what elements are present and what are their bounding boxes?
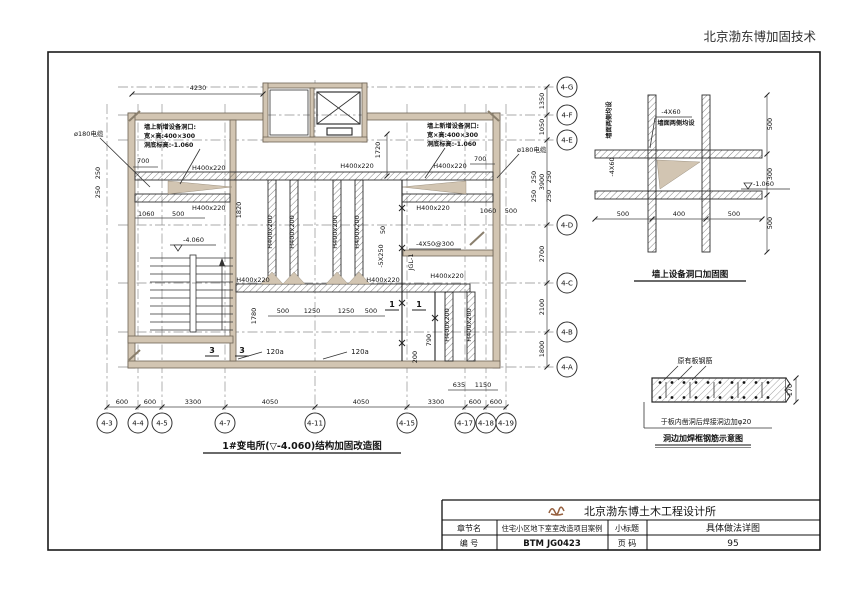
axis-bubble: 4-11 (307, 420, 323, 428)
dim-250: 250 (94, 186, 102, 198)
axis-bubble: 4-D (561, 222, 573, 230)
bottom-dim: 600 (490, 398, 502, 406)
dim-700-right: 700 (474, 155, 486, 163)
jgl-label: JGL-1 (407, 254, 415, 272)
beam-label: H400x220 (192, 164, 226, 172)
right-dim: 1800 (538, 341, 546, 358)
chapter-value: 住宅小区地下室室改造项目案例 (502, 524, 603, 533)
detail-dim-bottom: 500 (728, 210, 740, 218)
dim-500: 500 (277, 307, 289, 315)
page-key: 页 码 (618, 539, 637, 548)
staircase (150, 255, 233, 332)
dim-1150: 1150 (475, 381, 492, 389)
axis-bubble: 4-17 (457, 420, 473, 428)
beam-label-v: H400x200 (443, 308, 451, 342)
main-plan: ø180电缆 墙上新增设备洞口: 宽×高:400×300 洞底标高:-1.060… (74, 77, 577, 453)
elevation-mark-icon (174, 245, 182, 251)
bottom-dim: 3300 (428, 398, 445, 406)
axis-bubble: 4-18 (478, 420, 494, 428)
cable-label-left: ø180电缆 (74, 129, 104, 138)
axis-bubble: 4-A (561, 364, 573, 372)
dim-250: 250 (545, 190, 553, 202)
right-dim: 2700 (538, 246, 546, 263)
opening-note-right-2: 宽×高:400×300 (426, 131, 479, 139)
dim-1780: 1780 (250, 308, 258, 325)
elevation-mark-icon (744, 183, 752, 189)
opening-note-right-1: 墙上新增设备洞口: (427, 122, 479, 130)
detail-dim-right: 300 (766, 168, 774, 180)
axis-bubble: 4-G (561, 84, 574, 92)
axis-bubble: 4-19 (498, 420, 514, 428)
beam-label-v: H400x200 (353, 215, 361, 249)
sheet-svg: 北京渤东博加固技术 (0, 0, 863, 603)
beam-label: H400x220 (366, 276, 400, 284)
number-key: 编 号 (460, 538, 479, 548)
dim-500: 500 (365, 307, 377, 315)
dim-250: 250 (94, 167, 102, 179)
beam-label-v: H400x200 (465, 308, 473, 342)
beam-label: H400x220 (192, 204, 226, 212)
axis-bubbles-right: 4-G 4-F 4-E 4-D 4-C 4-B 4-A (557, 77, 577, 377)
number-value: BTM JG0423 (523, 539, 581, 549)
dim-635: 635 (453, 381, 465, 389)
dim-250: 250 (545, 171, 553, 183)
bottom-dim: 600 (144, 398, 156, 406)
trench-label: 120a (266, 348, 284, 356)
dim-170: 170 (786, 384, 794, 396)
dim-700-left: 700 (137, 157, 149, 165)
dim-200: 200 (411, 351, 419, 363)
detail-dim-bottom: 500 (617, 210, 629, 218)
right-dim: 1350 (538, 93, 546, 110)
detail-dim-right: 500 (766, 118, 774, 130)
dim-1820: 1820 (235, 202, 243, 219)
dim-250: 250 (530, 171, 538, 183)
beam-label: H400x220 (430, 272, 464, 280)
beam-label: H400x220 (416, 204, 450, 212)
subtitle-value: 具体做法详图 (706, 522, 760, 534)
cable-label-right: ø180电缆 (517, 145, 547, 154)
dim-1720: 1720 (374, 142, 382, 159)
wall-opening-detail: -4X60 墙面两侧均设 墙面两侧均设 -4X60 500 300 500 50… (593, 93, 791, 282)
side-note: 墙面两侧均设 (657, 119, 695, 127)
bottom-dim: 600 (116, 398, 128, 406)
beam-label: H400x220 (340, 162, 374, 170)
dim-4230: 4230 (190, 84, 207, 92)
dim-790: 790 (425, 334, 433, 346)
beam-label-v: H400x200 (288, 215, 296, 249)
axis-bubble: 4-4 (132, 420, 144, 428)
axis-bubble: 4-F (561, 112, 572, 120)
beam-label: H400x220 (433, 162, 467, 170)
side-note-v: 墙面两侧均设 (605, 101, 613, 139)
dim-1060: 1060 (138, 210, 155, 218)
axis-bubble: 4-3 (101, 420, 112, 428)
bottom-dim: 4050 (353, 398, 370, 406)
trench-label: 120a (351, 348, 369, 356)
right-dim: 2100 (538, 299, 546, 316)
opening-note-left-2: 宽×高:400×300 (143, 132, 196, 140)
office-name: 北京渤东博土木工程设计所 (584, 504, 716, 518)
beam-label-v: H400x200 (331, 215, 339, 249)
office-logo-icon (549, 507, 564, 515)
beam-label: H400x220 (236, 276, 270, 284)
right-dim: 3900 (538, 174, 546, 191)
axis-bubble: 4-15 (399, 420, 415, 428)
bottom-dim: 3300 (185, 398, 202, 406)
dim-1250: 1250 (338, 307, 355, 315)
dim-250: 250 (530, 190, 538, 202)
bottom-dim: 4050 (262, 398, 279, 406)
chapter-key: 章节名 (457, 523, 481, 533)
bottom-dim: 600 (469, 398, 481, 406)
page-value: 95 (727, 539, 738, 549)
section-mark-1: 1 (389, 300, 395, 309)
axis-bubble: 4-E (561, 137, 572, 145)
right-dim: 1050 (538, 119, 546, 136)
stair-direction-arrow (219, 258, 225, 266)
plate-label-v: -4X60 (608, 157, 616, 176)
axis-bubble: 4-C (561, 280, 573, 288)
subtitle-key: 小标题 (615, 523, 639, 533)
axis-bubbles-bottom: 4-3 4-4 4-5 4-7 4-11 4-15 4-17 4-18 4-19 (97, 413, 516, 433)
plate-note-2: -5X250 (377, 244, 385, 267)
slab-note: 于板内凿洞后焊接洞边加φ20 (661, 417, 752, 426)
dim-1060: 1060 (480, 207, 497, 215)
detail-dim-right: 500 (766, 217, 774, 229)
dim-500: 500 (505, 207, 517, 215)
plate-label: -4X60 (661, 108, 680, 116)
brand-header: 北京渤东博加固技术 (703, 29, 816, 44)
slab-detail: 原有板钢筋 170 于板内凿洞后焊接洞边加φ20 洞边加焊框钢筋示意图 (644, 356, 799, 448)
plan-title: 1#变电所(▽-4.060)结构加固改造图 (222, 440, 382, 452)
drawing-sheet: 北京渤东博加固技术 (0, 0, 863, 603)
opening-note-left-1: 墙上新增设备洞口: (144, 123, 196, 131)
detail-elevation-label: -1.060 (753, 180, 774, 188)
bottom-axes: 600 600 3300 4050 4050 3300 600 600 4-3 … (97, 398, 516, 433)
axis-bubble: 4-5 (156, 420, 167, 428)
dim-50: 50 (379, 226, 387, 234)
opening-note-right-3: 洞底标高:-1.060 (427, 140, 477, 148)
section-mark-3: 3 (209, 346, 215, 355)
section-mark-3: 3 (239, 346, 245, 355)
beam-label-v: H400x200 (266, 215, 274, 249)
elevation-label: -4.060 (183, 236, 204, 244)
detail-dim-bottom: 400 (673, 210, 685, 218)
section-mark-1: 1 (416, 300, 422, 309)
dim-500: 500 (172, 210, 184, 218)
wall-detail-title: 墙上设备洞口加固图 (652, 269, 729, 280)
slab-detail-title: 洞边加焊框钢筋示意图 (663, 433, 743, 443)
axis-bubble: 4-7 (219, 420, 230, 428)
reinforcement-beams (135, 172, 493, 361)
opening-note-left-3: 洞底标高:-1.060 (144, 141, 194, 149)
dim-1250: 1250 (304, 307, 321, 315)
title-block: 北京渤东博土木工程设计所 章节名 住宅小区地下室室改造项目案例 小标题 具体做法… (442, 500, 820, 550)
rebar-label: 原有板钢筋 (678, 356, 713, 365)
axis-bubble: 4-B (561, 329, 573, 337)
plate-note: -4X50@300 (416, 240, 454, 248)
